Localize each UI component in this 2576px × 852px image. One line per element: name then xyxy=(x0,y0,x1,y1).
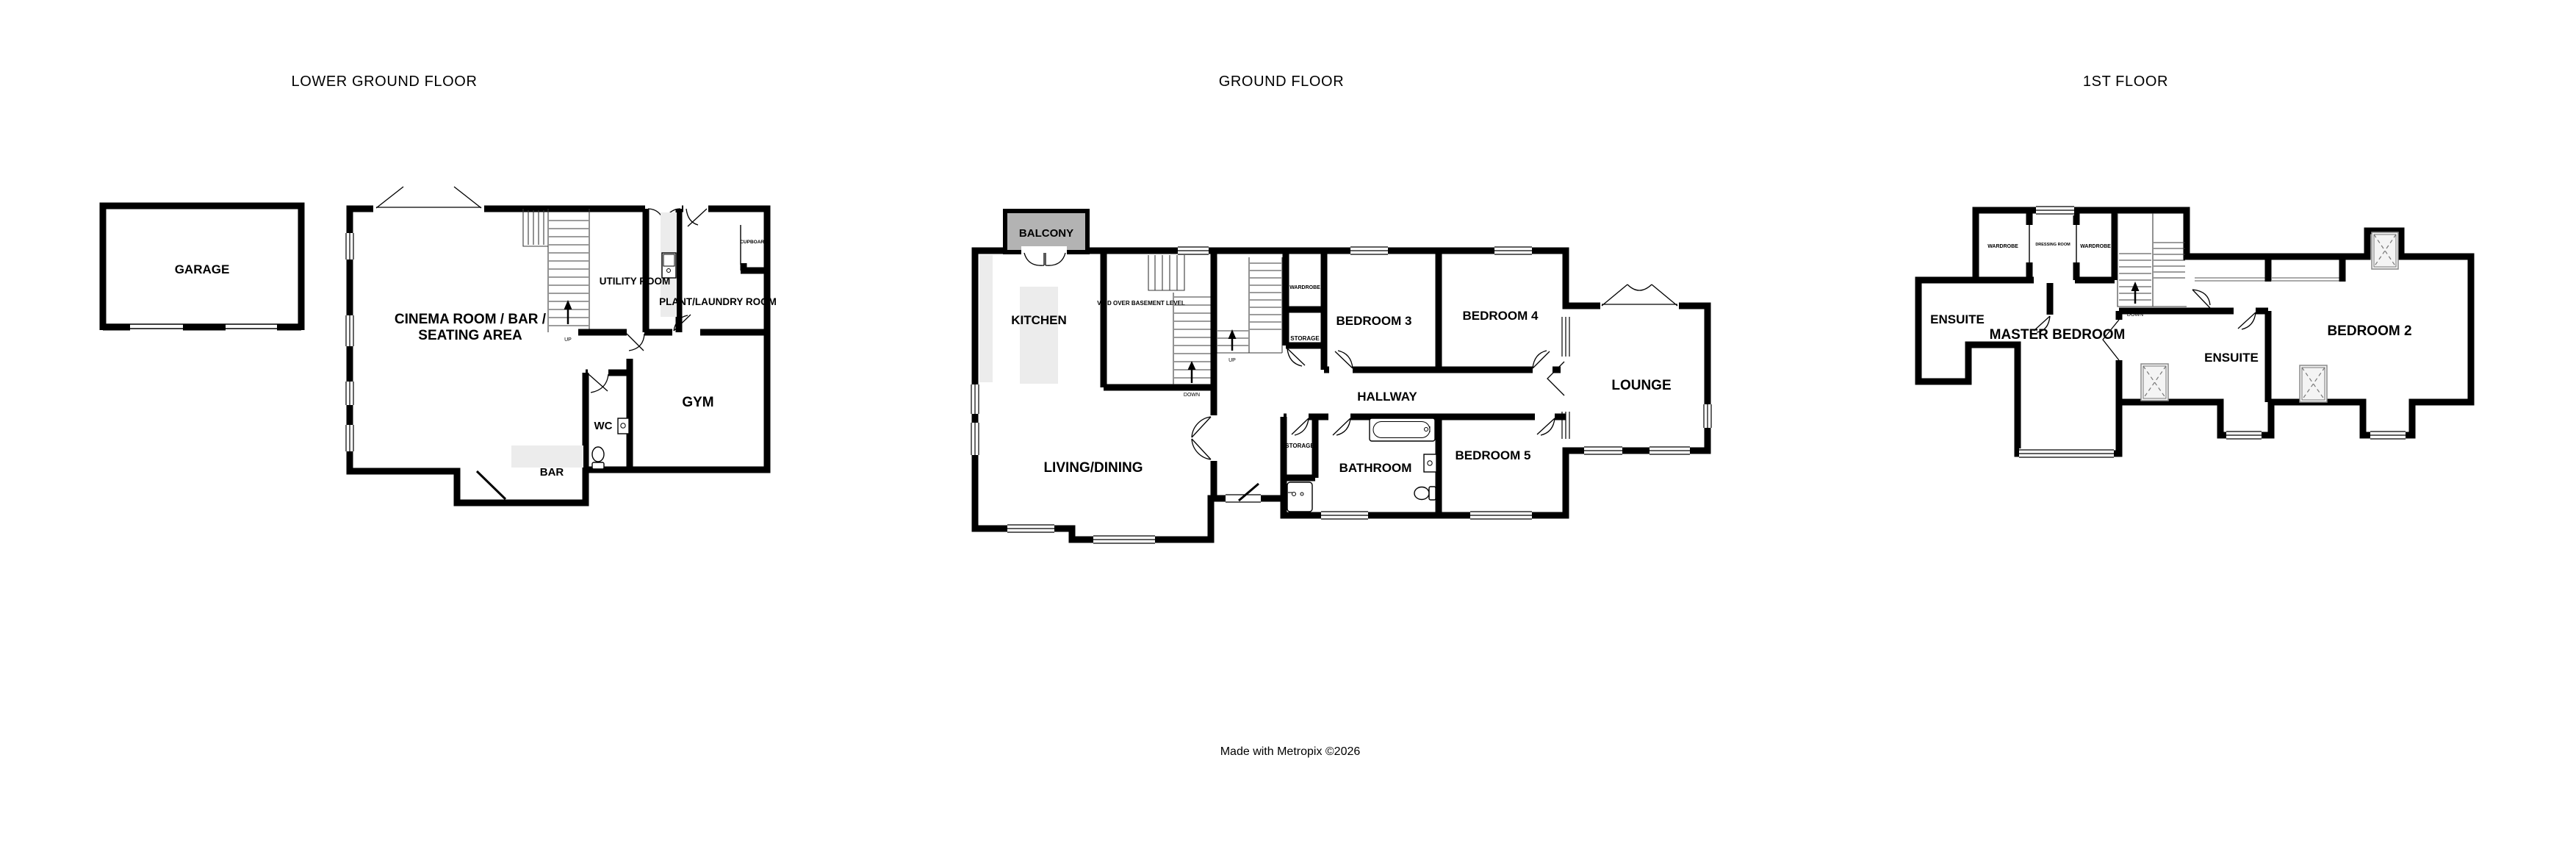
utility-label: UTILITY ROOM xyxy=(600,276,671,287)
first-floor-plan: WARDROBE DRESSING ROOM WARDROBE DOWN ENS… xyxy=(1918,205,2471,459)
cinema-patio-doors xyxy=(373,187,484,215)
lower-ground-floor-plan: GARAGE xyxy=(103,187,777,503)
wardrobe-right-label: WARDROBE xyxy=(2080,244,2111,249)
garage-label: GARAGE xyxy=(175,262,230,276)
toilet-icon xyxy=(1414,487,1429,500)
master-bedroom-label: MASTER BEDROOM xyxy=(1990,327,2126,343)
toilet-cistern-icon xyxy=(592,462,604,469)
rooflight-icon xyxy=(2141,364,2168,401)
bedroom5-label: BEDROOM 5 xyxy=(1456,448,1531,462)
garage-room: GARAGE xyxy=(103,206,301,330)
bedroom2-label: BEDROOM 2 xyxy=(2327,323,2411,339)
metropix-credit: Made with Metropix ©2026 xyxy=(1220,745,1361,758)
cupboard-label: CUPBOARD xyxy=(740,240,768,245)
floorplan-page: LOWER GROUND FLOOR GROUND FLOOR 1ST FLOO… xyxy=(0,0,2576,852)
storage-top-label: STORAGE xyxy=(1290,335,1320,342)
up-label: UP xyxy=(564,337,572,343)
plant-room-label: PLANT/LAUNDRY ROOM xyxy=(659,296,777,307)
bar-counter xyxy=(511,445,583,468)
living-dining-label: LIVING/DINING xyxy=(1043,460,1143,476)
ensuite-left-label: ENSUITE xyxy=(1930,312,1985,326)
ensuite-middle-label: ENSUITE xyxy=(2204,351,2259,365)
rooflight-icon xyxy=(2372,232,2398,269)
dormer-windows xyxy=(2226,430,2406,440)
hallway-label: HALLWAY xyxy=(1357,390,1417,404)
kitchen-island xyxy=(1020,287,1058,384)
basin-icon xyxy=(1424,454,1436,472)
bedroom3-label: BEDROOM 3 xyxy=(1336,314,1412,328)
floor-title-lower-ground: LOWER GROUND FLOOR xyxy=(291,74,477,90)
bar-label: BAR xyxy=(540,466,564,479)
cinema-room-label: CINEMA ROOM / BAR / xyxy=(395,312,547,327)
rooflight-icon xyxy=(2300,365,2327,402)
wardrobe-left-label: WARDROBE xyxy=(1987,244,2018,249)
bathroom-label: BATHROOM xyxy=(1339,461,1412,475)
toilet-icon xyxy=(592,447,604,462)
down-label: DOWN xyxy=(1184,393,1200,398)
cinema-room-label-line2: SEATING AREA xyxy=(418,328,522,343)
basin-icon xyxy=(618,418,629,434)
wc-label: WC xyxy=(594,420,613,432)
kitchen-label: KITCHEN xyxy=(1011,313,1067,327)
dressing-room-label: DRESSING ROOM xyxy=(2035,243,2070,247)
bedroom4-label: BEDROOM 4 xyxy=(1463,309,1539,323)
up-label: UP xyxy=(1228,358,1236,363)
void-label: VOID OVER BASEMENT LEVEL xyxy=(1097,300,1185,307)
floorplan-image: LOWER GROUND FLOOR GROUND FLOOR 1ST FLOO… xyxy=(0,0,2576,852)
balcony-label: BALCONY xyxy=(1019,227,1073,240)
ground-floor-outline xyxy=(975,251,1708,540)
floor-title-ground: GROUND FLOOR xyxy=(1219,74,1345,90)
ground-floor-plan: BALCONY KITCHEN VOID OVER xyxy=(970,211,1713,545)
kitchen-counter xyxy=(979,255,993,382)
lounge-label: LOUNGE xyxy=(1611,378,1671,393)
gym-label: GYM xyxy=(682,395,713,410)
floor-title-first: 1ST FLOOR xyxy=(2083,74,2168,90)
storage-bottom-label: STORAGE xyxy=(1285,443,1314,449)
wardrobe-label: WARDROBE xyxy=(1289,285,1320,290)
bathtub-icon xyxy=(1370,418,1435,441)
shower-icon xyxy=(1287,482,1312,512)
